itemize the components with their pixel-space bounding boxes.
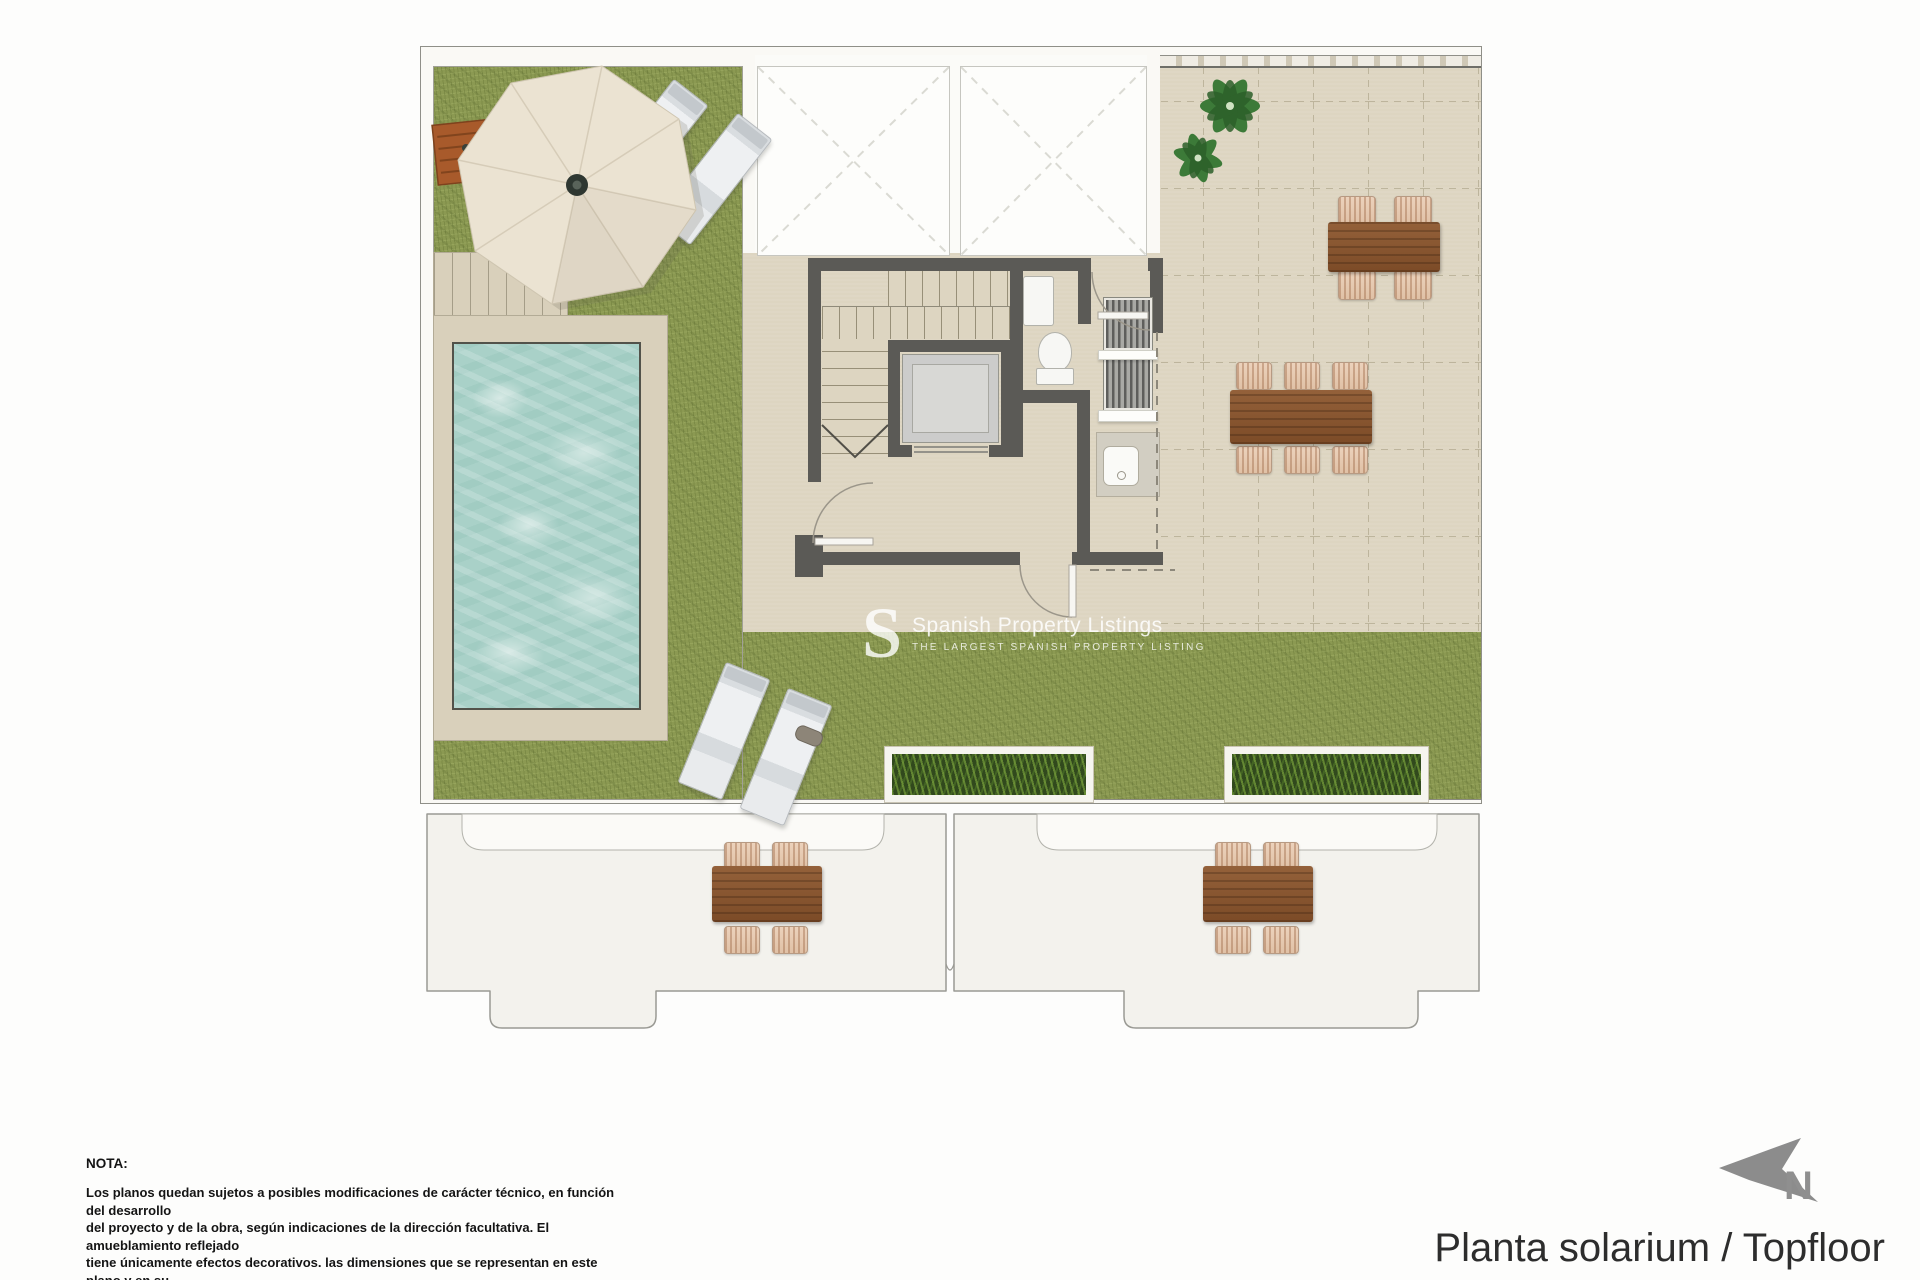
chair	[1332, 446, 1368, 474]
door-arc	[813, 483, 873, 543]
chair	[724, 926, 760, 954]
potted-plant-icon	[1158, 58, 1308, 193]
chair	[1215, 926, 1251, 954]
dining-table-4	[1328, 222, 1440, 272]
lower-floor-outline	[420, 806, 1490, 1046]
chair	[1263, 926, 1299, 954]
chair	[1284, 446, 1320, 474]
planter-shrubs	[892, 754, 1086, 795]
skylight-2	[960, 66, 1147, 256]
skylight-x-icon	[758, 67, 949, 255]
planter-shrubs	[1232, 754, 1421, 795]
stair-direction-arrow	[822, 425, 888, 457]
planter-box-left	[884, 746, 1094, 803]
parasol-umbrella-icon	[430, 44, 730, 334]
chair	[772, 926, 808, 954]
chair	[1284, 362, 1320, 390]
planter-box-right	[1224, 746, 1429, 803]
north-label: N	[1784, 1164, 1813, 1209]
watermark-tagline: THE LARGEST SPANISH PROPERTY LISTING	[912, 642, 1206, 653]
chair	[1236, 446, 1272, 474]
watermark-brand: Spanish Property Listings	[912, 614, 1206, 638]
dining-table-6	[1230, 390, 1372, 444]
door-leaf	[815, 538, 873, 545]
swimming-pool	[452, 342, 641, 710]
skylight-x-icon	[961, 67, 1146, 255]
chair	[1332, 362, 1368, 390]
watermark: S Spanish Property Listings THE LARGEST …	[862, 604, 1206, 662]
divider-notch	[946, 964, 954, 970]
door-swing-overlay	[780, 240, 1200, 640]
door-arc	[1092, 272, 1150, 330]
skylight-1	[757, 66, 950, 256]
note-body: Los planos quedan sujetos a posibles mod…	[86, 1184, 634, 1280]
dining-table-4	[1203, 866, 1313, 922]
dining-table-4	[712, 866, 822, 922]
note-block: NOTA: Los planos quedan sujetos a posibl…	[86, 1156, 634, 1280]
watermark-logo-icon: S	[862, 604, 902, 662]
elevator-door-lines	[914, 447, 988, 452]
note-heading: NOTA:	[86, 1156, 634, 1171]
chair	[1236, 362, 1272, 390]
north-arrow-icon	[1705, 1128, 1845, 1218]
chair	[1394, 270, 1432, 300]
door-leaf	[1098, 312, 1148, 319]
awning-band-left	[462, 814, 884, 850]
chair	[1338, 270, 1376, 300]
plan-title: Planta solarium / Topfloor	[1380, 1226, 1885, 1271]
floorplan-sheet: S Spanish Property Listings THE LARGEST …	[0, 0, 1920, 1280]
